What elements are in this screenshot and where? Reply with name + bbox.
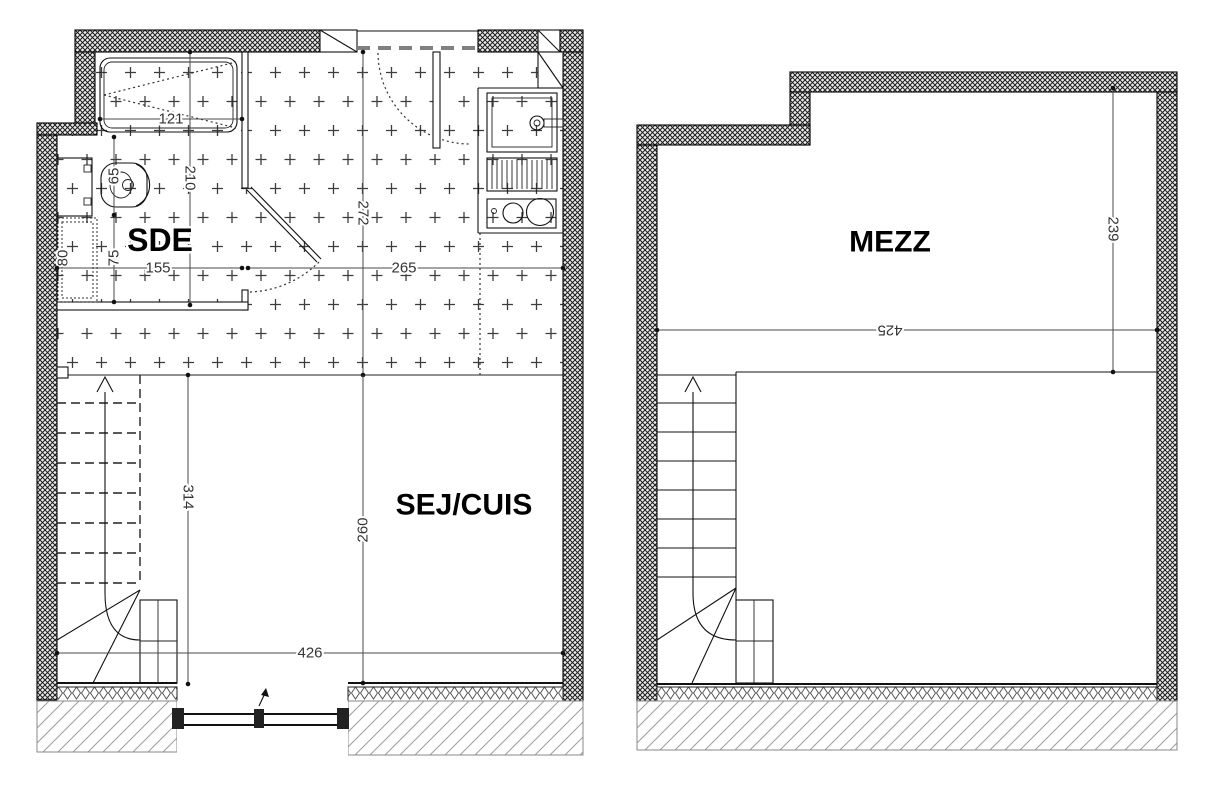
dim-label: 265: [391, 260, 416, 277]
kitchen-partition-wall: [433, 52, 440, 148]
living-room-window: [172, 688, 349, 757]
dim-label: 239: [1105, 216, 1122, 241]
staircase-mezzanine: [657, 375, 736, 683]
floor-plan-drawing: 121 210 65 75 80 155 265: [0, 0, 1206, 800]
stair-up-arrow: [97, 377, 113, 392]
ground-floor-plan: 121 210 65 75 80 155 265: [37, 30, 583, 757]
dim-label: 155: [145, 260, 170, 277]
room-label-sde: SDE: [127, 222, 193, 258]
dim-mezz-depth: 239: [1105, 86, 1122, 375]
dim-label: 272: [355, 200, 372, 225]
dim-label: 314: [180, 484, 197, 509]
dim-side-clearance: 80: [55, 250, 72, 267]
staircase-ground-floor: [57, 367, 177, 683]
dim-mezz-width: 425: [655, 322, 1160, 339]
dim-living-width: 426: [55, 645, 566, 662]
mezzanine-plan: 239 425 MEZZ: [637, 72, 1177, 750]
dim-label: 426: [297, 645, 322, 662]
mezzanine-floor-edge: [736, 372, 1157, 683]
dim-label: 425: [877, 322, 902, 339]
dim-label: 121: [158, 111, 183, 128]
dim-label: 65: [106, 168, 123, 185]
dim-label: 75: [106, 250, 123, 267]
mezzanine-exterior-walls: [637, 72, 1177, 750]
dim-living-depth: 260: [355, 375, 372, 685]
dim-stair-depth: 314: [180, 373, 197, 687]
room-label-mezz: MEZZ: [849, 226, 931, 259]
dim-label: 260: [355, 517, 372, 542]
room-label-sej-cuis: SEJ/CUIS: [396, 489, 533, 522]
dim-label: 210: [182, 165, 199, 190]
stair-walk-line: [105, 392, 140, 640]
stair-up-arrow: [685, 377, 701, 392]
